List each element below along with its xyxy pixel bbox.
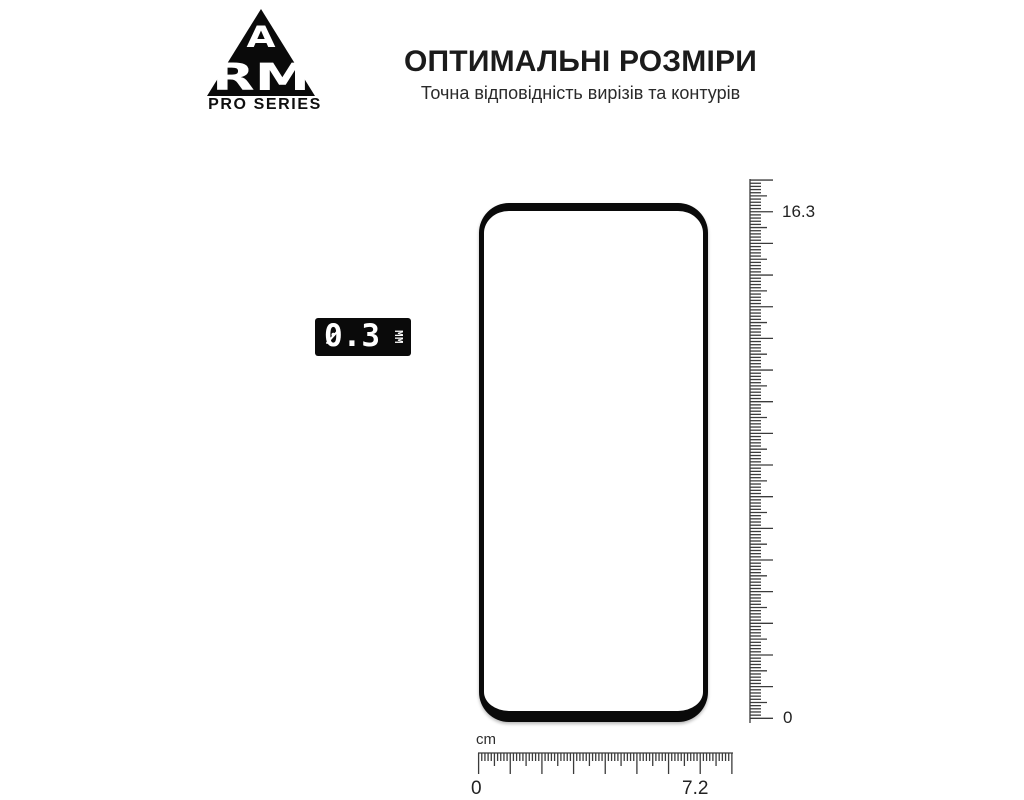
vertical-ruler-max-label: 16.3: [782, 202, 815, 222]
page-title: ОПТИМАЛЬНІ РОЗМІРИ: [388, 46, 773, 78]
horizontal-ruler-max-label: 7.2: [682, 778, 708, 800]
glass-outline: [479, 203, 708, 722]
logo-letter-a: A: [247, 20, 277, 54]
heading-block: ОПТИМАЛЬНІ РОЗМІРИ Точна відповідність в…: [388, 46, 773, 104]
thickness-unit: ММ: [392, 330, 404, 344]
horizontal-ruler: [476, 752, 736, 778]
product-diagram: A RM PRO SERIES ОПТИМАЛЬНІ РОЗМІРИ Точна…: [0, 0, 1024, 800]
thickness-badge: 0.3 ММ: [315, 318, 411, 356]
logo-letters-rm: RM: [212, 56, 310, 98]
horizontal-ruler-unit-label: cm: [476, 731, 496, 748]
logo-series-label: PRO SERIES: [200, 96, 330, 114]
brand-logo-icon: A RM: [204, 8, 326, 98]
vertical-ruler: [749, 177, 779, 727]
vertical-ruler-zero-label: 0: [783, 708, 792, 728]
page-subtitle: Точна відповідність вирізів та контурів: [388, 83, 773, 104]
horizontal-ruler-zero-label: 0: [471, 778, 482, 800]
